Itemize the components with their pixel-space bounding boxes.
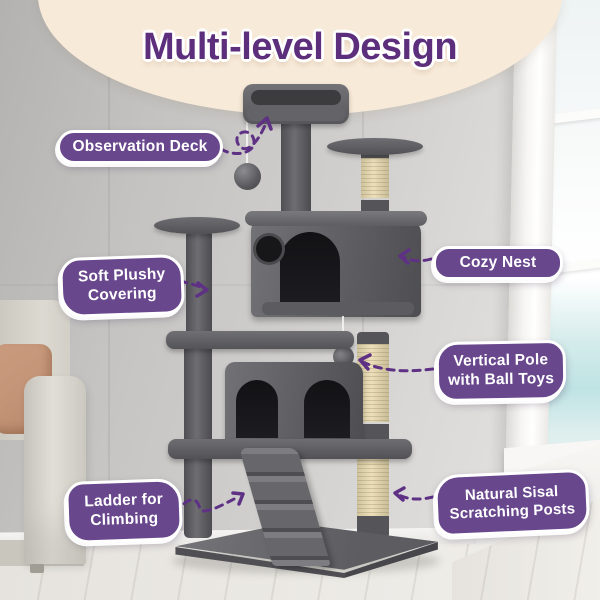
condo-entrance xyxy=(280,232,340,310)
observation-deck-lip xyxy=(247,106,345,121)
toy-string xyxy=(246,121,248,165)
lower-condo-entrance xyxy=(236,380,278,438)
label-vertical-pole: Vertical Pole with Ball Toys xyxy=(435,340,566,402)
label-cozy-nest: Cozy Nest xyxy=(433,246,563,280)
sisal-wrap xyxy=(361,158,389,198)
left-platform xyxy=(154,217,240,234)
product-infographic: Observation Deck Cozy Nest Soft Plushy C… xyxy=(0,0,600,600)
label-soft-plushy-covering: Soft Plushy Covering xyxy=(59,254,185,318)
label-observation-deck: Observation Deck xyxy=(57,130,223,164)
condo-floor-lip xyxy=(262,302,414,315)
page-title: Multi-level Design xyxy=(0,26,600,69)
middle-platform xyxy=(166,331,354,349)
label-ladder-for-climbing: Ladder for Climbing xyxy=(65,478,183,544)
top-post xyxy=(281,118,311,224)
label-natural-sisal-posts: Natural Sisal Scratching Posts xyxy=(434,469,591,538)
left-upper-post xyxy=(186,230,212,344)
condo-peek-hole xyxy=(256,236,282,262)
hanging-ball-toy xyxy=(234,163,261,190)
lower-condo-entrance xyxy=(304,380,350,438)
right-top-platform xyxy=(327,138,423,155)
observation-deck-hollow xyxy=(251,90,341,105)
condo-roof-lip xyxy=(245,211,427,226)
sisal-wrap xyxy=(357,456,389,516)
